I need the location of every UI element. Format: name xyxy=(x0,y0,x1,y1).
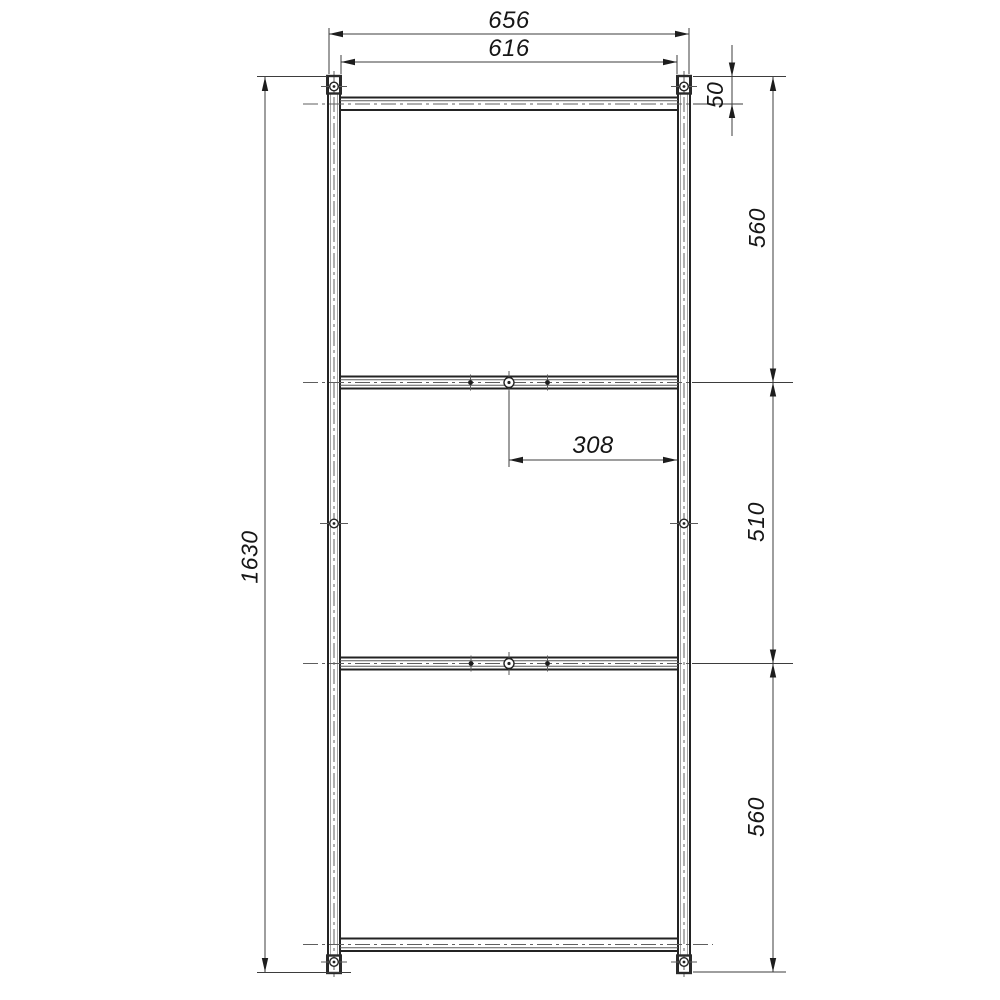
arrow-right xyxy=(663,457,677,463)
arrow-up xyxy=(770,383,776,397)
dim-label-overall-height: 1630 xyxy=(237,530,263,583)
arrow-right xyxy=(675,31,689,37)
rail2-right-dot xyxy=(545,661,550,666)
arrow-up xyxy=(729,104,735,118)
dim-label-rail-half-span: 308 xyxy=(572,432,614,459)
dim-right-chain: 560 510 560 xyxy=(743,77,776,972)
dim-label-section-middle: 510 xyxy=(743,502,769,542)
arrow-right xyxy=(663,59,677,65)
bottom-rail xyxy=(303,939,713,952)
dim-rail-half-span: 308 xyxy=(509,391,677,467)
middle-rail-2 xyxy=(303,652,690,675)
dim-label-section-bottom: 560 xyxy=(743,797,769,837)
top-rail xyxy=(303,98,713,111)
rail1-left-dot xyxy=(468,380,473,385)
middle-rail-1 xyxy=(303,371,690,394)
arrow-down xyxy=(729,63,735,77)
rail1-right-dot xyxy=(545,380,550,385)
arrow-up xyxy=(262,77,268,91)
arrow-left xyxy=(329,31,343,37)
frame-drawing-svg: 656 616 50 xyxy=(0,0,1000,1000)
dim-label-inner-width: 616 xyxy=(488,35,530,62)
arrow-down xyxy=(770,650,776,664)
arrow-left xyxy=(509,457,523,463)
arrow-down xyxy=(770,958,776,972)
dim-top-rail-drop: 50 xyxy=(702,45,735,136)
dim-label-top-rail-drop: 50 xyxy=(702,82,728,109)
arrow-left xyxy=(341,59,355,65)
dim-inner-width: 616 xyxy=(341,35,677,74)
arrow-down xyxy=(262,958,268,972)
arrow-down xyxy=(770,369,776,383)
arrow-up xyxy=(770,77,776,91)
dimensions: 656 616 50 xyxy=(237,7,794,973)
post-caps-and-bolts xyxy=(320,76,698,973)
technical-drawing-page: 656 616 50 xyxy=(0,0,1000,1000)
arrow-up xyxy=(770,664,776,678)
dim-label-section-top: 560 xyxy=(744,208,770,248)
dim-label-overall-width: 656 xyxy=(488,7,530,34)
frame-structure xyxy=(303,71,713,981)
rail2-left-dot xyxy=(469,661,474,666)
